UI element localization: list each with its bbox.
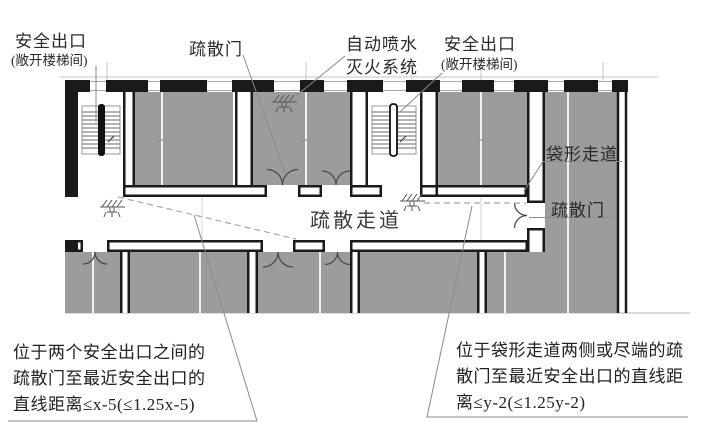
floor-plan-figure: 安全出口 (敞开楼梯间) 疏散门 自动喷水 灭火系统 安全出口 (敞开楼梯间) … (0, 0, 717, 442)
sprinkler-icon (100, 200, 125, 217)
note-right-line2: 散门至最近安全出口的直线距 (456, 364, 684, 390)
right-exterior-wall (618, 92, 626, 313)
distance-line-between-exits (118, 197, 296, 239)
note-between-exits: 位于两个安全出口之间的 疏散门至最近安全出口的 直线距离≤x-5(≤1.25x-… (13, 340, 206, 418)
label-corridor: 疏散走道 (310, 204, 402, 233)
note-dead-end: 位于袋形走道两侧或尽端的疏 散门至最近安全出口的直线距 离≤y-2(≤1.25y… (456, 338, 684, 416)
label-evac-door-top: 疏散门 (189, 35, 243, 60)
label-sprinkler-line2: 灭火系统 (346, 53, 418, 78)
label-exit-left-subtitle: (敞开楼梯间) (11, 49, 88, 69)
stairwell-right-icon (372, 104, 416, 156)
note-right-line1: 位于袋形走道两侧或尽端的疏 (456, 338, 684, 364)
label-evac-door-right: 疏散门 (551, 196, 605, 221)
corridor-top-wall (123, 185, 527, 197)
left-exterior-wall (65, 80, 78, 252)
dead-end-door-arc (515, 203, 528, 228)
stairwell-left-icon (82, 104, 120, 156)
note-right-line3: 离≤y-2(≤1.25y-2) (456, 390, 684, 416)
label-sprinkler-line1: 自动喷水 (346, 30, 418, 55)
note-left-line3: 直线距离≤x-5(≤1.25x-5) (13, 392, 206, 418)
note-left-line1: 位于两个安全出口之间的 (13, 340, 206, 366)
label-dead-end-corridor: 袋形走道 (546, 140, 618, 165)
label-exit-right-subtitle: (敞开楼梯间) (441, 53, 518, 73)
note-left-line2: 疏散门至最近安全出口的 (13, 366, 206, 392)
label-exit-right-title: 安全出口 (444, 30, 516, 55)
corridor-bottom-wall (65, 240, 528, 252)
